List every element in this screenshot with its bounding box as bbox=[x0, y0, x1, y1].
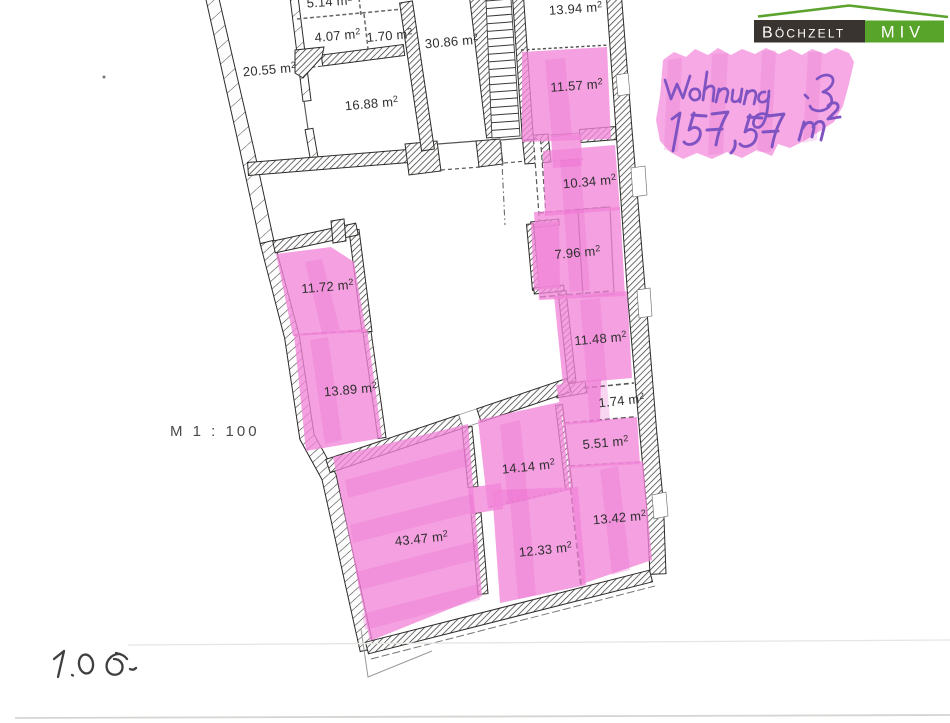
svg-text:MIV: MIV bbox=[881, 24, 925, 42]
svg-text:M 1 : 100: M 1 : 100 bbox=[170, 423, 260, 440]
svg-text:BÖCHZELT: BÖCHZELT bbox=[762, 25, 845, 42]
